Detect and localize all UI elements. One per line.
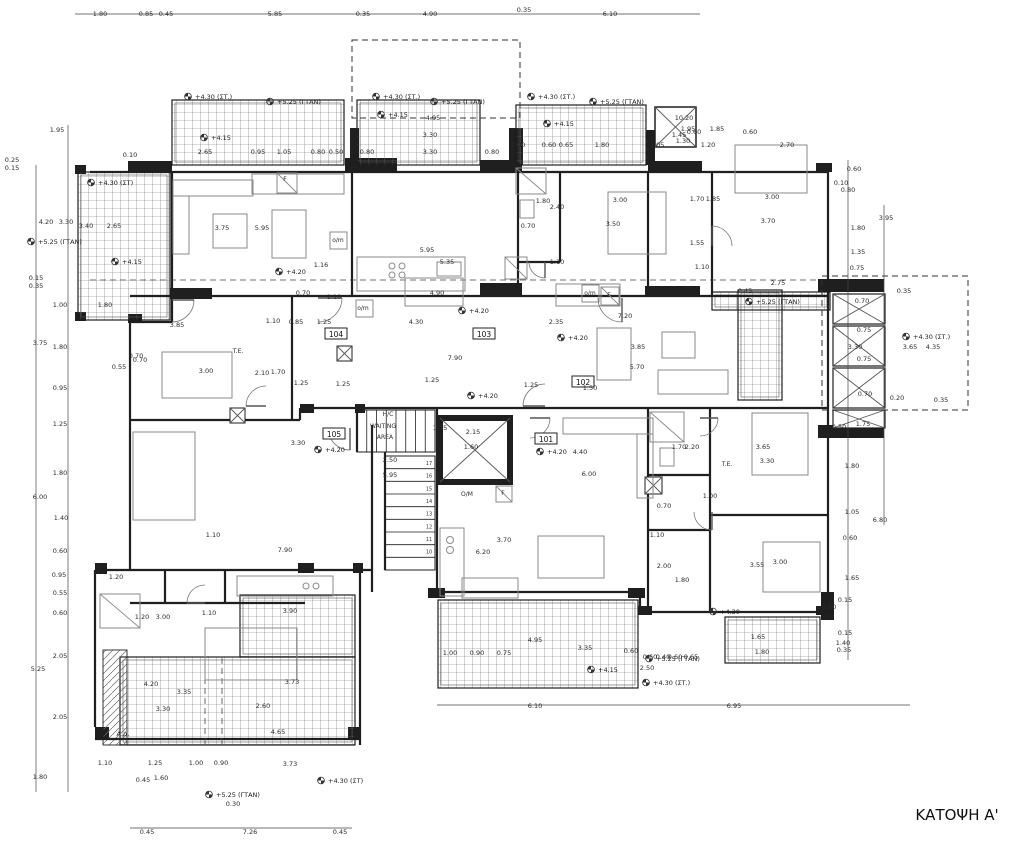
- dimension-label: 1.75: [856, 420, 870, 428]
- fixture-diagonal: [505, 257, 527, 279]
- dimension-label: 3.00: [156, 613, 170, 621]
- dimension-label: 1.10: [650, 531, 664, 539]
- dimension-label: 0.70: [858, 390, 872, 398]
- level-label: +5.25 (ΓΤΑΝ): [600, 98, 644, 106]
- dimension-label: 1.80: [595, 141, 609, 149]
- floor-plan-page: 1716151413121110 104103102101105 +4.30 (…: [0, 0, 1024, 848]
- dimension-label: 0.65: [684, 653, 698, 661]
- dimension-label: 1.55: [690, 239, 704, 247]
- dimension-label: 2.50: [640, 664, 654, 672]
- dimension-label: 1.70: [690, 195, 704, 203]
- dimension-label: 2.75: [771, 279, 785, 287]
- level-label: +4.15: [554, 120, 574, 128]
- dimension-label: 1.80: [845, 462, 859, 470]
- dimension-label: 0.90: [470, 649, 484, 657]
- dimension-label: o/m: [584, 290, 596, 297]
- level-symbol-wedge: [28, 238, 31, 241]
- dimension-label: 3.30: [59, 218, 73, 226]
- level-label: +4.30 (ΣΤ.): [913, 333, 950, 341]
- dimension-label: 0.60: [53, 609, 67, 617]
- dimension-label: F: [607, 292, 611, 299]
- dimension-label: 4.90: [430, 289, 444, 297]
- dimension-label: 5.85: [268, 10, 282, 18]
- door-arc: [187, 585, 205, 603]
- dimension-label: 0.35: [897, 287, 911, 295]
- dimension-label: 1.25: [336, 380, 350, 388]
- furniture-item: [563, 418, 653, 434]
- level-symbol-wedge: [528, 93, 531, 96]
- level-symbol-wedge: [906, 337, 909, 340]
- dimension-label: 3.50: [606, 220, 620, 228]
- level-label: +5.25 (ΓΤΑΝ): [756, 298, 800, 306]
- dimension-label: 5.70: [630, 363, 644, 371]
- level-symbol-wedge: [318, 450, 321, 453]
- dimension-label: 3.00: [765, 193, 779, 201]
- dimension-label: 0.20: [890, 394, 904, 402]
- dimension-label: 1.70: [271, 368, 285, 376]
- stair-number: 12: [426, 524, 432, 530]
- dimension-label: o/m: [357, 305, 369, 312]
- dimension-label: 3.95: [879, 214, 893, 222]
- dimension-label: 0.75: [857, 355, 871, 363]
- stove-burner: [303, 583, 309, 589]
- dimension-label: 3.65: [756, 443, 770, 451]
- dimension-label: 6.00: [582, 470, 596, 478]
- level-symbol-wedge: [590, 98, 593, 101]
- dimension-label: 0.50: [329, 148, 343, 156]
- dimension-label: 2.65: [198, 148, 212, 156]
- balcony-hatch: [120, 657, 355, 745]
- wall-segment: [128, 161, 172, 172]
- dimension-label: 1.25: [148, 759, 162, 767]
- dimension-label: F: [501, 490, 505, 497]
- dimension-label: 6.95: [727, 702, 741, 710]
- level-label: +4.20: [547, 448, 567, 456]
- dimension-label: 0.80: [822, 603, 836, 611]
- dimension-label: 0.60: [843, 534, 857, 542]
- level-label: +4.30 (ΣΤ.): [195, 93, 232, 101]
- level-symbol-wedge: [646, 683, 649, 686]
- dimension-label: O/M: [461, 491, 473, 498]
- dimension-label: 1.05: [277, 148, 291, 156]
- dimension-label: 0.75: [850, 264, 864, 272]
- dimension-label: 0.35: [934, 396, 948, 404]
- level-symbol-wedge: [459, 307, 462, 310]
- dimension-label: 4.30: [409, 318, 423, 326]
- dimension-label: 1.80: [851, 224, 865, 232]
- level-symbol-wedge: [188, 97, 191, 100]
- dimension-label: 1.80: [755, 648, 769, 656]
- fixture-diagonal: [100, 594, 140, 628]
- dimension-label: 1.10: [550, 258, 564, 266]
- dimension-label: 1.65: [845, 574, 859, 582]
- dimension-label: 3.85: [631, 343, 645, 351]
- dimension-label: 2.40: [550, 203, 564, 211]
- dimension-label: 1.85: [710, 125, 724, 133]
- dimension-label: 6.10: [528, 702, 542, 710]
- dimension-label: 3.55: [750, 561, 764, 569]
- balcony-hatch: [78, 172, 170, 320]
- level-symbol-wedge: [903, 333, 906, 336]
- dimension-label: 1.10: [98, 759, 112, 767]
- dimension-label: F: [283, 176, 287, 183]
- level-label: +4.15: [211, 134, 231, 142]
- wall-segment: [170, 288, 212, 299]
- level-symbol-wedge: [373, 93, 376, 96]
- furniture-item: [440, 528, 464, 596]
- dimension-label: 4.20: [144, 680, 158, 688]
- balcony-hatch: [438, 600, 638, 688]
- level-symbol-wedge: [593, 102, 596, 105]
- fixture-diagonal: [650, 412, 684, 442]
- dimension-label: 0.60: [53, 547, 67, 555]
- furniture-item: [597, 328, 631, 380]
- dimension-label: 4.20: [39, 218, 53, 226]
- level-label: +5.25 (ΓΤΑΝ): [216, 791, 260, 799]
- dimension-label: 0.10: [123, 151, 137, 159]
- stove-burner: [399, 263, 405, 269]
- dimension-label: 1.10: [266, 317, 280, 325]
- stove-burner: [389, 272, 395, 278]
- dimension-label: T.E.: [721, 461, 733, 468]
- dimension-label: 1.25: [317, 318, 331, 326]
- dimension-label: 2.35: [549, 318, 563, 326]
- dimension-label: 2.65: [107, 222, 121, 230]
- dimension-label: 0.45: [136, 776, 150, 784]
- stair-number: 10: [426, 550, 432, 556]
- furniture-item: [763, 542, 820, 592]
- stove-burner: [447, 547, 454, 554]
- dimension-label: 1.35: [433, 424, 447, 432]
- dimension-label: 1.05: [650, 141, 664, 149]
- dimension-label: 0.80: [485, 148, 499, 156]
- dimension-label: 0.15: [29, 274, 43, 282]
- stove-burner: [313, 583, 319, 589]
- level-symbol-wedge: [537, 448, 540, 451]
- dimension-label: 6.20: [476, 548, 490, 556]
- dimension-label: 1.10: [206, 531, 220, 539]
- level-symbol-wedge: [558, 334, 561, 337]
- dimension-label: 6.00: [33, 493, 47, 501]
- dimension-label: 1.80: [33, 773, 47, 781]
- dimension-label: 3.35: [578, 644, 592, 652]
- dimension-label: 0.60: [743, 128, 757, 136]
- room-tag-number: 104: [329, 330, 344, 339]
- dimension-label: H/C: [383, 411, 394, 418]
- furniture-item: [735, 145, 807, 193]
- dimension-label: 1.00: [189, 759, 203, 767]
- dimension-label: 1.00: [53, 301, 67, 309]
- dimension-label: 3.30: [848, 343, 862, 351]
- fixture-diagonal: [277, 173, 297, 193]
- level-symbol-wedge: [561, 338, 564, 341]
- furniture-item: [173, 180, 253, 196]
- balcony-hatch: [357, 100, 480, 165]
- dimension-label: 0.15: [5, 164, 19, 172]
- dimension-label: 3.90: [283, 607, 297, 615]
- dimension-label: 6.80: [873, 516, 887, 524]
- dimension-label: 2.70: [780, 141, 794, 149]
- dimension-label: 1.16: [314, 261, 328, 269]
- level-symbol-wedge: [531, 97, 534, 100]
- level-symbol-wedge: [206, 791, 209, 794]
- furniture-item: [538, 536, 604, 578]
- dimension-label: 2.60: [256, 702, 270, 710]
- dimension-label: 1.25: [524, 381, 538, 389]
- level-symbol-wedge: [267, 98, 270, 101]
- dimension-label: 0.60: [542, 141, 556, 149]
- level-label: +5.25 (ΓΤΑΝ): [277, 98, 321, 106]
- furniture-item: [658, 370, 728, 394]
- dimension-label: 3.70: [497, 536, 511, 544]
- dimension-label: 1.80: [675, 576, 689, 584]
- level-symbol-wedge: [209, 795, 212, 798]
- level-symbol-wedge: [185, 93, 188, 96]
- dimension-label: 0.70: [521, 222, 535, 230]
- dimension-label: 0.75: [497, 649, 511, 657]
- dimension-label: 3.73: [283, 760, 297, 768]
- dimension-label: 0.95: [251, 148, 265, 156]
- level-label: +4.15: [388, 111, 408, 119]
- dimension-label: 0.95: [53, 384, 67, 392]
- plan-title: ΚΑΤΟΨΗ Α': [915, 806, 998, 824]
- dimension-label: 1.80: [93, 10, 107, 18]
- level-symbol-wedge: [376, 97, 379, 100]
- dimension-label: 3.70: [761, 217, 775, 225]
- stair-number: 11: [426, 537, 432, 543]
- dimension-label: 0.95: [52, 571, 66, 579]
- dimension-label: 1.80: [98, 301, 112, 309]
- level-label: +4.20: [469, 307, 489, 315]
- dimension-label: 1.80: [53, 469, 67, 477]
- dimension-label: 1.80: [536, 197, 550, 205]
- dimension-label: 3.30: [423, 131, 437, 139]
- dimension-label: 4.95: [426, 114, 440, 122]
- dimension-label: 0.85: [139, 10, 153, 18]
- dimension-label: 10.20: [675, 114, 694, 122]
- level-label: +4.30 (ΣΤ): [328, 777, 363, 785]
- dimension-label: 6.10: [603, 10, 617, 18]
- dimension-label: 1.60: [154, 774, 168, 782]
- wall-segment: [648, 161, 702, 172]
- level-label: +4.15: [122, 258, 142, 266]
- level-symbol-wedge: [318, 777, 321, 780]
- dimension-label: 0.70: [657, 502, 671, 510]
- dimension-label: 0.60: [847, 165, 861, 173]
- level-label: +4.30 (ΣΤ): [98, 179, 133, 187]
- dimension-label: 0.60: [668, 653, 682, 661]
- wall-segment: [353, 563, 363, 573]
- dimension-label: 3.30: [760, 457, 774, 465]
- level-symbol-wedge: [713, 612, 716, 615]
- dimension-label: 0.65: [559, 141, 573, 149]
- dimension-label: 0.60: [687, 128, 701, 136]
- balcony-hatch: [725, 617, 820, 663]
- dimension-label: 5.25: [31, 665, 45, 673]
- dimension-label: 3.40: [79, 222, 93, 230]
- level-symbol-wedge: [279, 272, 282, 275]
- dimension-label: 2.50: [383, 456, 397, 464]
- floor-plan-drawing: 1716151413121110 104103102101105 +4.30 (…: [0, 0, 1024, 848]
- dimension-label: 3.35: [177, 688, 191, 696]
- dimension-label: 3.30: [156, 705, 170, 713]
- level-symbol-wedge: [540, 452, 543, 455]
- dimension-label: 5.95: [383, 471, 397, 479]
- level-symbol-wedge: [462, 311, 465, 314]
- dimension-label: 3.73: [285, 678, 299, 686]
- dimension-label: 1.60: [464, 443, 478, 451]
- dimension-label: 2.20: [685, 443, 699, 451]
- dimension-label: 3.00: [199, 367, 213, 375]
- door-arc: [529, 262, 545, 278]
- room-tag-number: 101: [539, 435, 554, 444]
- dimension-label: 1.00: [443, 649, 457, 657]
- furniture-item: [462, 578, 518, 598]
- level-label: +4.15: [598, 666, 618, 674]
- dimension-label: 0.15: [838, 596, 852, 604]
- dimension-label: 1.05: [845, 508, 859, 516]
- dimension-label: 0.55: [112, 363, 126, 371]
- dimension-label: 1.20: [109, 573, 123, 581]
- dimension-label: 4.65: [271, 728, 285, 736]
- furniture-item: [662, 332, 695, 358]
- dimension-label: 1.30: [676, 137, 690, 145]
- dimension-label: 2.05: [53, 713, 67, 721]
- dimension-label: 0.80: [311, 148, 325, 156]
- level-label: +4.20: [568, 334, 588, 342]
- dimension-label: 0.50: [832, 423, 846, 431]
- dimension-label: 1.40: [54, 514, 68, 522]
- dimension-label: 0.70: [855, 297, 869, 305]
- dimension-label: Α.Δ.: [116, 730, 129, 738]
- dimension-label: 3.00: [773, 558, 787, 566]
- dimension-label: 4.40: [573, 448, 587, 456]
- level-symbol-wedge: [315, 446, 318, 449]
- dimension-label: 0.55: [53, 589, 67, 597]
- level-label: +4.30: [720, 608, 740, 616]
- dimension-label: 2.10: [255, 369, 269, 377]
- furniture-item: [252, 174, 344, 194]
- level-symbol-wedge: [643, 679, 646, 682]
- stair-number: 13: [426, 512, 432, 518]
- dimension-label: 7.26: [243, 828, 257, 836]
- dimension-label: 1.50: [583, 384, 597, 392]
- level-label: +5.25 (ΓΤΑΝ): [441, 98, 485, 106]
- dimension-label: 1.80: [53, 343, 67, 351]
- dimension-label: 0.90: [214, 759, 228, 767]
- wall-segment: [816, 163, 832, 172]
- dimension-label: 3.75: [215, 224, 229, 232]
- door-arc: [246, 386, 266, 406]
- dimension-label: 0.15: [838, 629, 852, 637]
- dimension-label: 3.00: [613, 196, 627, 204]
- dimension-label: 7.90: [278, 546, 292, 554]
- dimension-label: 1.00: [703, 492, 717, 500]
- dimension-label: 3.65: [903, 343, 917, 351]
- stair-number: 15: [426, 486, 432, 492]
- dimension-label: 3.30: [291, 439, 305, 447]
- level-label: +5.25 (ΓΤΑΝ): [38, 238, 82, 246]
- furniture-item: [133, 432, 195, 520]
- dimension-label: WAITING: [370, 423, 396, 430]
- furniture-item: [173, 196, 189, 254]
- furniture-item: [272, 210, 306, 258]
- dimension-label: 7.90: [448, 354, 462, 362]
- dimension-label: T.E.: [232, 348, 244, 355]
- dimension-label: 1.85: [706, 195, 720, 203]
- dimension-label: 1.20: [135, 613, 149, 621]
- dimension-label: 0.35: [837, 646, 851, 654]
- dimension-label: 1.10: [202, 609, 216, 617]
- room-tag-number: 103: [477, 330, 492, 339]
- dimension-label: 4.95: [528, 636, 542, 644]
- level-symbol-wedge: [431, 98, 434, 101]
- dimension-label: 5.35: [440, 258, 454, 266]
- level-symbol-wedge: [321, 781, 324, 784]
- stove-burner: [389, 263, 395, 269]
- dimension-label: 1.00: [511, 141, 525, 149]
- dimension-label: 0.75: [857, 326, 871, 334]
- wall-segment: [298, 563, 314, 573]
- dimension-label: 0.80: [360, 148, 374, 156]
- dimension-label: 1.10: [327, 293, 341, 301]
- dimension-label: 0.35: [517, 6, 531, 14]
- level-label: +4.30 (ΣΤ.): [383, 93, 420, 101]
- dimension-label: 1.25: [53, 420, 67, 428]
- balcony-hatch: [516, 105, 646, 165]
- level-label: +4.20: [478, 392, 498, 400]
- dimension-label: 1.25: [425, 376, 439, 384]
- dimension-label: 4.90: [423, 10, 437, 18]
- dimension-label: 0.25: [5, 156, 19, 164]
- dimension-label: 2.05: [53, 652, 67, 660]
- level-label: +4.20: [325, 446, 345, 454]
- wall-segment: [480, 283, 522, 296]
- dimension-label: 0.45: [738, 287, 752, 295]
- dimension-label: 5.95: [420, 246, 434, 254]
- dimension-label: 3.85: [170, 321, 184, 329]
- dimension-label: 3.75: [33, 339, 47, 347]
- dimension-label: 1.65: [751, 633, 765, 641]
- dimension-label: 5.95: [255, 224, 269, 232]
- dimension-label: 2.15: [466, 428, 480, 436]
- level-label: +4.20: [286, 268, 306, 276]
- dimension-label: 0.45: [333, 828, 347, 836]
- dimension-label: 0.35: [356, 10, 370, 18]
- dimension-label: 7.20: [618, 312, 632, 320]
- furniture-item: [162, 352, 232, 398]
- dimension-label: 0.80: [841, 186, 855, 194]
- furniture-item: [520, 200, 534, 218]
- dimension-label: 0.30: [226, 800, 240, 808]
- dimension-label: 0.45: [159, 10, 173, 18]
- dimension-label: 1.20: [701, 141, 715, 149]
- level-label: +4.30 (ΣΤ.): [653, 679, 690, 687]
- dimension-label: 2.00: [657, 562, 671, 570]
- door-arc: [172, 300, 194, 322]
- dimension-label: 0.35: [29, 282, 43, 290]
- room-tag-number: 105: [327, 430, 342, 439]
- dimension-label: 1.10: [695, 263, 709, 271]
- dimension-label: 3.30: [423, 148, 437, 156]
- level-symbol-wedge: [471, 396, 474, 399]
- stair-number: 14: [426, 499, 432, 505]
- dimension-label: 1.25: [294, 379, 308, 387]
- wall-segment: [818, 279, 884, 292]
- dimension-label: 4.35: [926, 343, 940, 351]
- dimension-label: 0.60: [624, 647, 638, 655]
- dimension-label: 0.85: [289, 318, 303, 326]
